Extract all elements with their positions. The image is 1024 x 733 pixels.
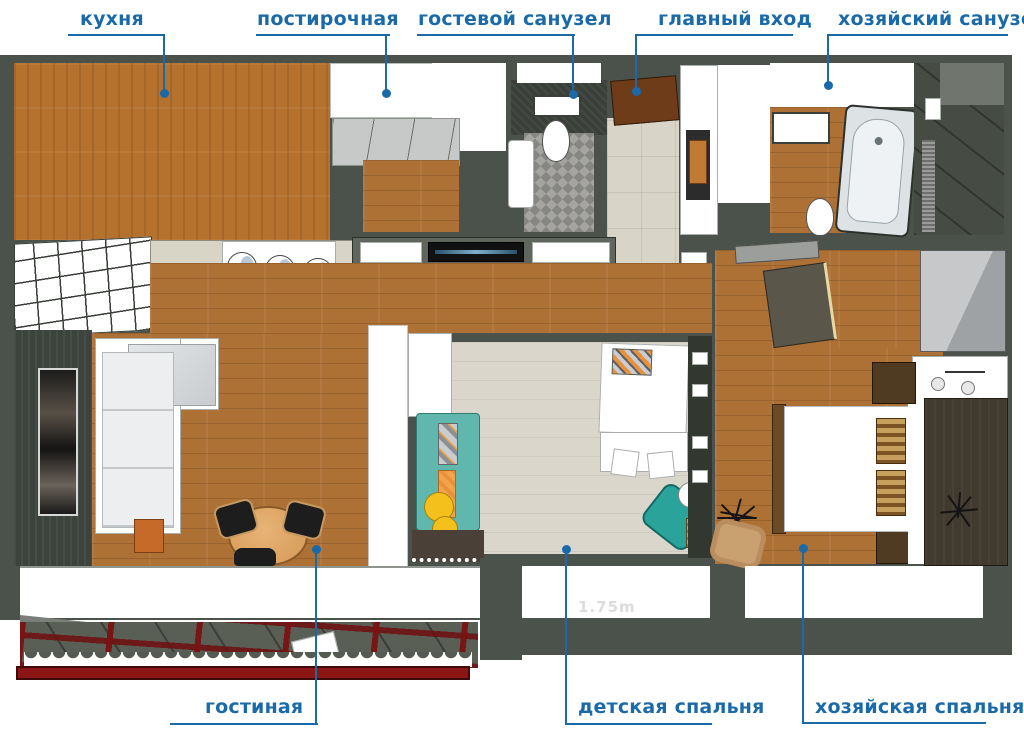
bed-pillow-wood-slats xyxy=(876,418,906,464)
master-bathroom-sink xyxy=(772,112,830,144)
leader-master-bedroom-dot xyxy=(799,544,808,553)
leader-master-bathroom-dot xyxy=(824,81,833,90)
desk-chair xyxy=(610,448,639,477)
leader-laundry-underline xyxy=(256,34,390,36)
nightstand xyxy=(872,362,916,404)
shower-corner-gray xyxy=(940,63,1004,105)
label-master-bathroom: хозяйский санузел xyxy=(838,8,1024,30)
dining-chair xyxy=(234,548,276,566)
hall-closet-white xyxy=(718,65,770,203)
leader-laundry-dot xyxy=(382,89,391,98)
tv-screen xyxy=(38,368,78,516)
kitchen-floor xyxy=(14,63,330,240)
kitchen-lower-cabinets xyxy=(14,236,152,337)
middle-wall-column xyxy=(480,558,522,660)
balcony-railing xyxy=(16,666,470,680)
entrance-floor xyxy=(607,118,679,265)
label-main-entrance: главный вход xyxy=(658,8,812,30)
vanity-sink xyxy=(931,377,945,391)
cooktop xyxy=(428,242,524,262)
kitchen-cabinet-door xyxy=(360,242,422,263)
leader-main-entrance-underline xyxy=(635,34,793,36)
laundry-shelf xyxy=(332,118,460,166)
master-toilet xyxy=(806,198,834,236)
sofa-ottoman xyxy=(134,519,164,553)
master-accent-wall xyxy=(924,398,1008,566)
children-cabinet xyxy=(408,333,452,417)
leader-guest-bathroom-line xyxy=(572,34,574,92)
label-kitchen: кухня xyxy=(80,8,144,30)
balcony-scallop-awning xyxy=(24,652,472,667)
leader-children-bedroom-dot xyxy=(562,545,571,554)
leader-main-entrance-line xyxy=(635,34,637,89)
leader-laundry-line xyxy=(385,34,387,91)
leader-main-entrance-dot xyxy=(632,87,641,96)
laundry-floor xyxy=(363,160,459,232)
dimension-watermark: 1.75m xyxy=(578,598,636,616)
leader-guest-bathroom-dot xyxy=(569,90,578,99)
label-master-bedroom: хозяйская спальня xyxy=(815,696,1024,718)
shelf-box xyxy=(692,470,708,483)
vanity-sink xyxy=(961,381,975,395)
shower-fixture xyxy=(925,98,941,120)
label-children-bedroom: детская спальня xyxy=(578,696,765,718)
leader-kitchen-underline xyxy=(68,34,165,36)
shelf-box xyxy=(692,384,708,397)
bed-pillow-wood-slats xyxy=(876,470,906,516)
window-sill-right xyxy=(745,566,983,618)
leader-kitchen-dot xyxy=(160,89,169,98)
plant-silhouette xyxy=(736,498,746,508)
floor-plan: 1.75m кухня постирочная гостевой санузел… xyxy=(0,0,1024,733)
corridor-floor xyxy=(150,263,712,333)
leader-master-bathroom-line xyxy=(827,34,829,82)
leader-kitchen-line xyxy=(163,34,165,91)
bottom-wall-step xyxy=(983,600,1012,655)
leader-living-room-dot xyxy=(312,545,321,554)
plant-silhouette xyxy=(958,492,968,502)
leader-children-bedroom-line xyxy=(565,549,567,725)
label-guest-bathroom: гостевой санузел xyxy=(418,8,612,30)
leader-guest-bathroom-underline xyxy=(417,34,575,36)
children-rug xyxy=(412,530,484,562)
shelf-box xyxy=(692,352,708,365)
washing-machine xyxy=(508,140,534,208)
label-living-room: гостиная xyxy=(205,696,303,718)
bathtub xyxy=(835,104,920,238)
hallway-wardrobe-column xyxy=(368,325,408,571)
vanity-faucet xyxy=(945,371,985,373)
master-wardrobe-floor xyxy=(838,250,920,348)
master-tv-panel xyxy=(763,262,837,348)
label-laundry: постирочная xyxy=(257,8,399,30)
children-bed-pillow xyxy=(612,348,653,375)
guest-toilet xyxy=(542,120,570,162)
window-sill-left xyxy=(20,566,480,618)
kitchen-cabinet-door xyxy=(532,242,610,263)
master-bathroom-top xyxy=(770,63,914,107)
leader-living-room-line xyxy=(315,549,317,725)
leader-master-bedroom-line xyxy=(802,548,804,724)
hall-wardrobe-wood-inset xyxy=(689,140,707,184)
leader-master-bathroom-underline xyxy=(827,34,1008,36)
shelf-box xyxy=(692,436,708,449)
sofa-seat-cushions xyxy=(102,352,174,528)
shower-mosaic-strip xyxy=(922,140,935,232)
entrance-door xyxy=(610,75,680,126)
desk-chair xyxy=(647,451,676,480)
cooktop-glass xyxy=(435,250,517,254)
leader-living-room-underline xyxy=(170,723,318,725)
children-sofa-pillow-gray xyxy=(438,423,458,465)
master-wardrobe xyxy=(920,250,1006,352)
bottom-wall-band xyxy=(515,618,1012,655)
leader-master-bedroom-underline xyxy=(802,722,986,724)
leader-children-bedroom-underline xyxy=(565,723,712,725)
bathtub-inner xyxy=(846,117,907,225)
guest-bathroom-top-strip xyxy=(517,63,601,83)
